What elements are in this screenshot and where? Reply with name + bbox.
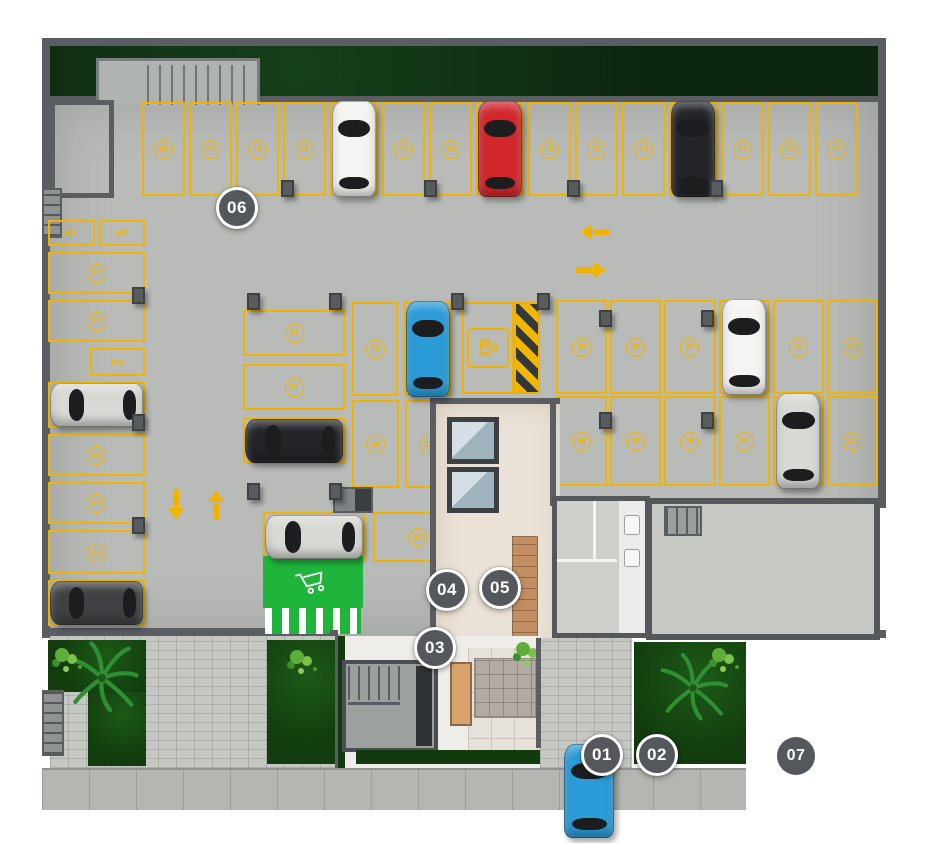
parking-spot — [330, 102, 378, 196]
marker-02[interactable]: 02 — [636, 734, 678, 776]
car-silver — [50, 383, 143, 427]
spot-number: 39 — [735, 432, 754, 451]
parking-spot — [48, 382, 145, 428]
marker-label: 05 — [490, 578, 510, 598]
marker-label: 01 — [592, 745, 612, 765]
spot-number: 09 — [201, 140, 220, 159]
parking-spot: 32 — [243, 364, 345, 410]
pillar — [132, 287, 145, 304]
pillar — [281, 180, 294, 197]
car-silver — [776, 393, 820, 489]
crosswalk-stripes — [265, 608, 361, 634]
marker-04[interactable]: 04 — [426, 569, 468, 611]
parking-spot: 29 — [773, 300, 824, 394]
spot-number: 31 — [285, 324, 304, 343]
moto-spot-m2: M2 — [99, 220, 146, 246]
shopping-cart-icon — [292, 563, 335, 601]
parking-spot — [404, 302, 452, 396]
marker-label: 03 — [425, 638, 445, 658]
room-steps — [664, 506, 702, 536]
parking-spot: 04 — [48, 434, 145, 476]
parking-zone-top-row: 080910111314161718202122 — [142, 102, 858, 196]
parking-spot: 06 — [48, 530, 145, 574]
ev-charging-station-icon — [474, 335, 502, 361]
car-darkgray — [50, 581, 143, 625]
spot-number: 02 — [87, 312, 106, 331]
parking-spot — [243, 418, 345, 464]
bush-icon — [712, 648, 726, 662]
pillar — [701, 412, 714, 429]
wall-segment — [878, 38, 886, 508]
bathroom-fixture — [624, 515, 640, 535]
spot-number: 08 — [154, 140, 173, 159]
no-parking-hatch — [514, 302, 540, 394]
direction-arrow-up — [208, 490, 224, 520]
garage-floor-plan: 080910111314161718202122 M1 M2 0102M3040… — [0, 0, 933, 843]
direction-arrow-left — [580, 224, 610, 240]
cart-zone — [263, 556, 363, 608]
spot-number: 01 — [87, 264, 106, 283]
parking-zone-right-bottom: 3637383941 — [556, 396, 878, 486]
parking-spot — [263, 512, 365, 562]
spot-number: 10 — [248, 140, 267, 159]
parking-spot: 26 — [610, 300, 661, 394]
stairwell — [342, 660, 438, 752]
spot-number: 30 — [843, 338, 862, 357]
spot-number: 43 — [408, 528, 427, 547]
parking-spot: 10 — [236, 102, 279, 196]
parking-spot: 01 — [48, 252, 145, 294]
parking-spot: 30 — [827, 300, 878, 394]
car-black — [245, 419, 343, 463]
spot-number: 22 — [827, 140, 846, 159]
parking-zone-mid-stack: 3132 — [243, 310, 345, 464]
pillar — [599, 412, 612, 429]
spot-number: 11 — [295, 140, 314, 159]
vehicle-ramp — [96, 58, 260, 105]
wall-segment — [550, 404, 556, 506]
bathroom-fixture — [624, 549, 640, 567]
pillar — [329, 293, 342, 310]
elevator — [447, 417, 499, 464]
pillar — [132, 517, 145, 534]
moto-spot-m3: M3 — [90, 348, 145, 376]
marker-label: 02 — [647, 745, 667, 765]
parking-spot: 18 — [622, 102, 665, 196]
pillar — [247, 483, 260, 500]
stone-tile-patch — [474, 658, 536, 718]
parking-spot: 09 — [189, 102, 232, 196]
car-black — [671, 101, 715, 197]
pillar — [247, 293, 260, 310]
car-blue — [406, 301, 450, 397]
spot-number: 26 — [626, 338, 645, 357]
parking-spot — [48, 580, 145, 626]
plant-icon — [516, 642, 530, 656]
hedge-strip — [356, 750, 540, 764]
spot-number: 36 — [572, 432, 591, 451]
spot-number: 38 — [680, 432, 699, 451]
elevator-bank — [447, 417, 499, 513]
moto-spot-m1: M1 — [48, 220, 95, 246]
moto-spot-label: M1 — [65, 228, 77, 238]
parking-zone-left-column: M1 M2 0102M3040506 — [48, 220, 145, 626]
marker-03[interactable]: 03 — [414, 627, 456, 669]
direction-arrow-down — [168, 490, 184, 520]
service-rooms — [552, 496, 650, 638]
parking-spot — [773, 396, 824, 486]
pillar — [424, 180, 437, 197]
spot-number: 25 — [572, 338, 591, 357]
parking-spot: 23 — [352, 302, 398, 396]
car-red — [478, 101, 522, 197]
parking-spot: 21 — [768, 102, 811, 196]
sidewalk — [42, 768, 746, 810]
spot-number: 05 — [87, 494, 106, 513]
direction-arrow-right — [576, 262, 606, 278]
wall-segment — [42, 38, 886, 46]
ev-sign-frame — [467, 328, 509, 368]
parking-spot: 39 — [719, 396, 770, 486]
spot-number: 29 — [789, 338, 808, 357]
spot-number: 41 — [843, 432, 862, 451]
palm-tree-icon — [62, 638, 142, 718]
marker-01[interactable]: 01 — [581, 734, 623, 776]
pillar — [599, 310, 612, 327]
marker-06[interactable]: 06 — [216, 187, 258, 229]
spot-number: 20 — [733, 140, 752, 159]
car-white — [332, 101, 376, 197]
entrance-door — [450, 662, 472, 726]
parking-spot: 16 — [528, 102, 571, 196]
parking-spot: 31 — [243, 310, 345, 356]
spot-number: 37 — [626, 432, 645, 451]
garden-steps — [42, 690, 64, 756]
pillar — [701, 310, 714, 327]
left-column-spots: 0102M3040506 — [48, 252, 145, 626]
pillar — [329, 483, 342, 500]
wall-segment — [536, 638, 541, 748]
parking-spot: 20 — [721, 102, 764, 196]
bush-icon — [55, 648, 69, 662]
elevator — [447, 467, 499, 514]
marker-label: 04 — [437, 580, 457, 600]
marker-07[interactable]: 07 — [777, 737, 815, 775]
car-silver — [265, 515, 363, 559]
parking-spot: 37 — [610, 396, 661, 486]
parking-spot: 17 — [575, 102, 618, 196]
parking-spot: 02 — [48, 300, 145, 342]
spot-number: 18 — [634, 140, 653, 159]
spot-number: 13 — [394, 140, 413, 159]
spot-number: 16 — [540, 140, 559, 159]
parking-spot: 05 — [48, 482, 145, 524]
parking-zone-mid-vert-top: 23 — [352, 302, 452, 396]
bush-icon — [290, 650, 304, 664]
marker-label: 07 — [787, 747, 806, 765]
ramp-treads — [147, 65, 253, 105]
spot-number: 14 — [441, 140, 460, 159]
spot-number: 06 — [87, 543, 106, 562]
car-white — [722, 299, 766, 395]
parking-spot: 08 — [142, 102, 185, 196]
pillar — [567, 180, 580, 197]
marker-label: 06 — [227, 198, 247, 218]
spot-number: 34 — [366, 435, 385, 454]
pillar — [537, 293, 550, 310]
spot-number: 23 — [366, 340, 385, 359]
utility-room — [50, 100, 114, 198]
pillar — [451, 293, 464, 310]
parking-spot: 41 — [827, 396, 878, 486]
parking-spot: 38 — [664, 396, 715, 486]
spot-number: 04 — [87, 446, 106, 465]
pillar — [710, 180, 723, 197]
spot-number: 21 — [780, 140, 799, 159]
parking-spot: 13 — [382, 102, 425, 196]
parking-spot: 22 — [815, 102, 858, 196]
marker-05[interactable]: 05 — [479, 567, 521, 609]
parking-spot: 36 — [556, 396, 607, 486]
pillar — [132, 414, 145, 431]
moto-spot-label: M2 — [116, 228, 128, 238]
parking-spot: 34 — [352, 400, 399, 488]
spot-number: 27 — [680, 338, 699, 357]
wall-segment — [436, 398, 560, 404]
parking-spot — [719, 300, 770, 394]
parking-spot — [476, 102, 524, 196]
spot-number: 32 — [285, 378, 304, 397]
ev-charging-spot — [462, 302, 514, 394]
spot-number: 17 — [587, 140, 606, 159]
